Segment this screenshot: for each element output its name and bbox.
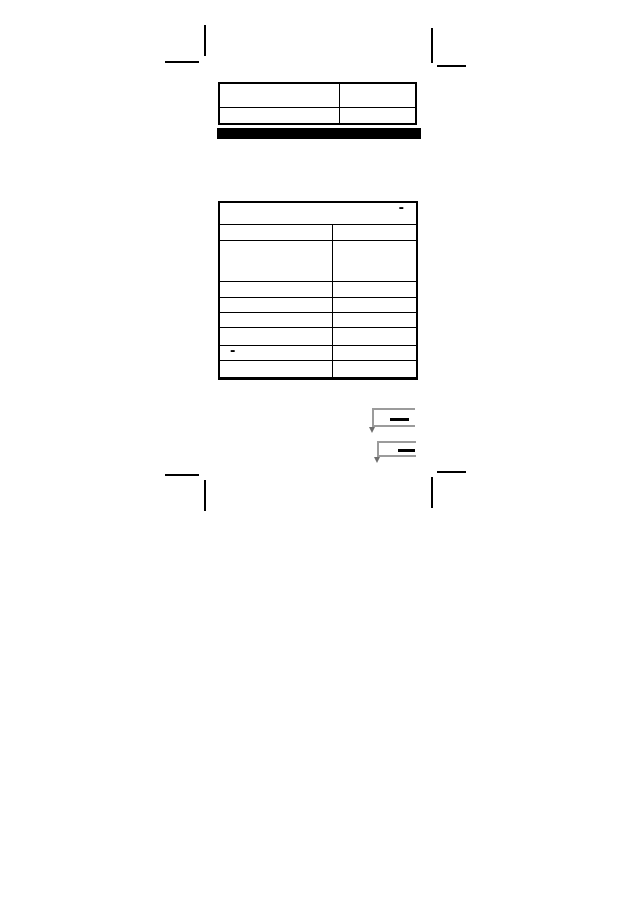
table-row (220, 298, 416, 313)
table-cell-right (333, 313, 416, 327)
header-table-row (220, 84, 415, 108)
arrow-down-icon (374, 457, 380, 463)
header-table-cell (220, 108, 340, 123)
table-cell-left (220, 298, 333, 312)
header-table-cell (220, 84, 340, 107)
crop-mark-bottom-right-vertical (431, 477, 433, 508)
spec-table: - - (218, 201, 418, 380)
arrow-down-icon (369, 427, 375, 433)
emphasis-dash (398, 449, 415, 452)
header-table-cell (340, 108, 415, 123)
table-row (220, 282, 416, 298)
header-table-row (220, 108, 415, 123)
table-row (220, 361, 416, 378)
table-cell-right (333, 298, 416, 312)
crop-mark-bottom-right-horizontal (437, 471, 466, 473)
table-row (220, 241, 416, 282)
page-canvas: - - (0, 0, 636, 900)
crop-mark-top-right-vertical (431, 28, 433, 63)
bracket-top-line (372, 408, 415, 410)
header-table (218, 82, 417, 125)
section-divider-bar (217, 128, 421, 139)
table-cell-right (333, 361, 416, 377)
table-cell-left (220, 241, 333, 281)
crop-mark-bottom-left-vertical (204, 480, 206, 511)
step-bracket-diagram-2 (373, 438, 419, 468)
table-cell-left (220, 282, 333, 297)
table-cell-left (220, 328, 333, 345)
table-cell-right (333, 328, 416, 345)
crop-mark-bottom-left-horizontal (165, 474, 199, 476)
bracket-bottom-line (377, 455, 416, 457)
bracket-bottom-line (372, 425, 415, 427)
step-bracket-diagram-1 (368, 406, 418, 434)
bracket-top-line (377, 441, 416, 443)
table-row (220, 225, 416, 241)
table-cell-left (220, 225, 333, 240)
table-cell-left: - (220, 346, 333, 360)
emphasis-dash (390, 418, 409, 421)
table-cell-left (220, 313, 333, 327)
header-corner-mark: - (399, 201, 404, 216)
crop-mark-top-left-vertical (204, 25, 206, 56)
table-row: - (220, 346, 416, 361)
table-row (220, 328, 416, 346)
spec-table-header: - (220, 203, 416, 225)
table-cell-right (333, 346, 416, 360)
table-cell-right (333, 282, 416, 297)
table-row (220, 313, 416, 328)
table-cell-right (333, 241, 416, 281)
crop-mark-top-right-horizontal (437, 65, 466, 67)
table-cell-left (220, 361, 333, 377)
crop-mark-top-left-horizontal (165, 61, 199, 63)
header-table-cell (340, 84, 415, 107)
cell-dash-mark: - (230, 344, 235, 359)
table-cell-right (333, 225, 416, 240)
